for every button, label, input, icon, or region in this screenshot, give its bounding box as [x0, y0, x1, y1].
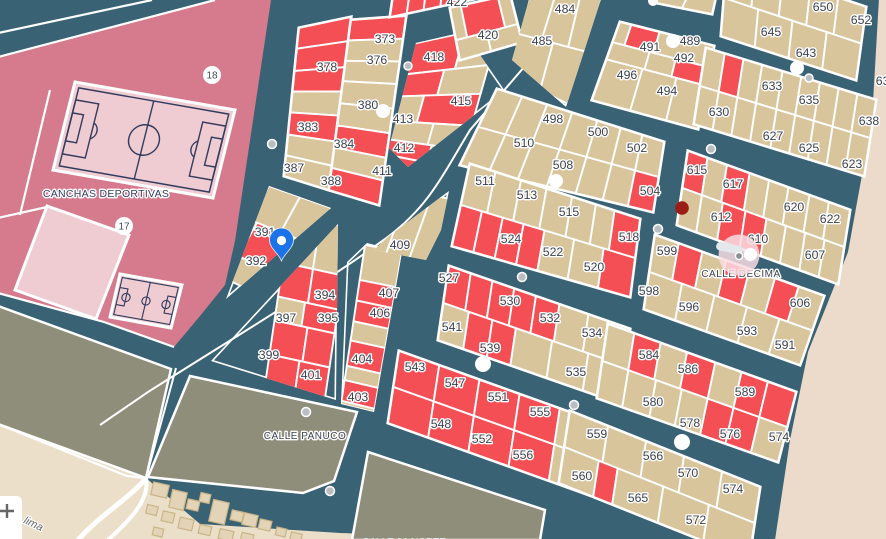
- svg-text:399: 399: [259, 348, 280, 362]
- svg-text:520: 520: [584, 260, 605, 274]
- svg-text:543: 543: [405, 360, 426, 374]
- svg-text:620: 620: [784, 200, 805, 214]
- svg-text:395: 395: [318, 311, 339, 325]
- svg-text:500: 500: [588, 125, 609, 139]
- svg-text:598: 598: [639, 284, 660, 298]
- svg-text:522: 522: [543, 245, 564, 259]
- svg-text:418: 418: [424, 50, 445, 64]
- svg-text:578: 578: [680, 416, 701, 430]
- svg-text:420: 420: [478, 28, 499, 42]
- svg-text:406: 406: [370, 306, 391, 320]
- svg-text:606: 606: [790, 296, 811, 310]
- svg-text:496: 496: [617, 68, 638, 82]
- svg-text:518: 518: [619, 230, 640, 244]
- svg-text:CALLE PANUCO: CALLE PANUCO: [264, 431, 347, 442]
- svg-text:625: 625: [799, 141, 820, 155]
- svg-text:524: 524: [501, 232, 522, 246]
- svg-text:411: 411: [372, 164, 392, 178]
- svg-text:373: 373: [375, 32, 396, 46]
- svg-text:593: 593: [737, 324, 758, 338]
- svg-text:498: 498: [543, 112, 564, 126]
- svg-text:494: 494: [657, 84, 678, 98]
- svg-text:378: 378: [317, 60, 338, 74]
- svg-text:412: 412: [394, 141, 415, 155]
- svg-text:643: 643: [796, 46, 817, 60]
- svg-text:380: 380: [358, 98, 379, 112]
- svg-text:513: 513: [517, 188, 538, 202]
- svg-text:17: 17: [118, 222, 130, 233]
- svg-text:622: 622: [820, 212, 841, 226]
- svg-text:548: 548: [431, 417, 452, 431]
- svg-text:599: 599: [657, 244, 678, 258]
- svg-text:541: 541: [442, 320, 463, 334]
- svg-text:392: 392: [246, 254, 267, 268]
- svg-text:591: 591: [775, 338, 796, 352]
- svg-text:650: 650: [813, 0, 834, 14]
- svg-text:596: 596: [679, 300, 700, 314]
- svg-text:566: 566: [643, 449, 664, 463]
- svg-text:617: 617: [723, 177, 744, 191]
- svg-text:627: 627: [763, 129, 784, 143]
- svg-text:401: 401: [301, 368, 322, 382]
- svg-text:388: 388: [321, 174, 342, 188]
- svg-text:532: 532: [540, 311, 561, 325]
- svg-text:652: 652: [851, 13, 872, 27]
- svg-text:555: 555: [530, 405, 551, 419]
- svg-text:510: 510: [514, 136, 535, 150]
- svg-text:559: 559: [587, 427, 608, 441]
- svg-text:635: 635: [799, 93, 820, 107]
- svg-text:547: 547: [445, 376, 466, 390]
- svg-text:511: 511: [475, 174, 495, 188]
- svg-text:484: 484: [555, 2, 576, 16]
- svg-text:535: 535: [566, 365, 587, 379]
- svg-text:485: 485: [532, 34, 553, 48]
- svg-text:574: 574: [769, 430, 790, 444]
- svg-text:489: 489: [680, 34, 701, 48]
- svg-text:407: 407: [379, 286, 400, 300]
- svg-text:394: 394: [315, 288, 336, 302]
- svg-text:630: 630: [709, 105, 730, 119]
- svg-text:638: 638: [859, 114, 880, 128]
- svg-text:403: 403: [348, 390, 369, 404]
- svg-text:422: 422: [447, 0, 468, 9]
- svg-text:397: 397: [276, 311, 297, 325]
- svg-text:615: 615: [687, 163, 708, 177]
- svg-text:404: 404: [352, 352, 373, 366]
- svg-text:570: 570: [678, 466, 699, 480]
- svg-text:576: 576: [720, 427, 741, 441]
- svg-text:409: 409: [390, 238, 411, 252]
- svg-text:504: 504: [640, 184, 661, 198]
- svg-text:18: 18: [206, 71, 218, 82]
- svg-text:607: 607: [805, 248, 826, 262]
- svg-text:572: 572: [686, 513, 707, 527]
- svg-text:586: 586: [678, 362, 699, 376]
- svg-text:534: 534: [582, 326, 603, 340]
- svg-text:565: 565: [628, 491, 649, 505]
- svg-text:502: 502: [627, 141, 648, 155]
- svg-text:551: 551: [488, 390, 509, 404]
- svg-text:580: 580: [643, 395, 664, 409]
- svg-text:574: 574: [723, 482, 744, 496]
- svg-text:508: 508: [553, 158, 574, 172]
- svg-text:636: 636: [876, 74, 886, 88]
- svg-text:645: 645: [761, 25, 782, 39]
- svg-text:376: 376: [367, 53, 388, 67]
- svg-text:560: 560: [572, 469, 593, 483]
- svg-text:515: 515: [559, 205, 580, 219]
- svg-text:492: 492: [674, 51, 695, 65]
- svg-text:413: 413: [393, 112, 414, 126]
- svg-text:387: 387: [284, 161, 305, 175]
- svg-text:527: 527: [439, 271, 460, 285]
- svg-text:491: 491: [640, 40, 661, 54]
- svg-text:633: 633: [762, 79, 783, 93]
- svg-text:383: 383: [298, 120, 319, 134]
- svg-text:584: 584: [639, 348, 660, 362]
- svg-text:556: 556: [513, 448, 534, 462]
- svg-text:589: 589: [735, 385, 756, 399]
- svg-text:539: 539: [480, 341, 501, 355]
- svg-text:415: 415: [451, 94, 472, 108]
- svg-text:552: 552: [472, 432, 493, 446]
- svg-text:384: 384: [334, 137, 355, 151]
- svg-text:623: 623: [842, 157, 863, 171]
- svg-text:530: 530: [500, 294, 521, 308]
- svg-text:CANCHAS DEPORTIVAS: CANCHAS DEPORTIVAS: [43, 188, 169, 200]
- svg-text:612: 612: [711, 210, 732, 224]
